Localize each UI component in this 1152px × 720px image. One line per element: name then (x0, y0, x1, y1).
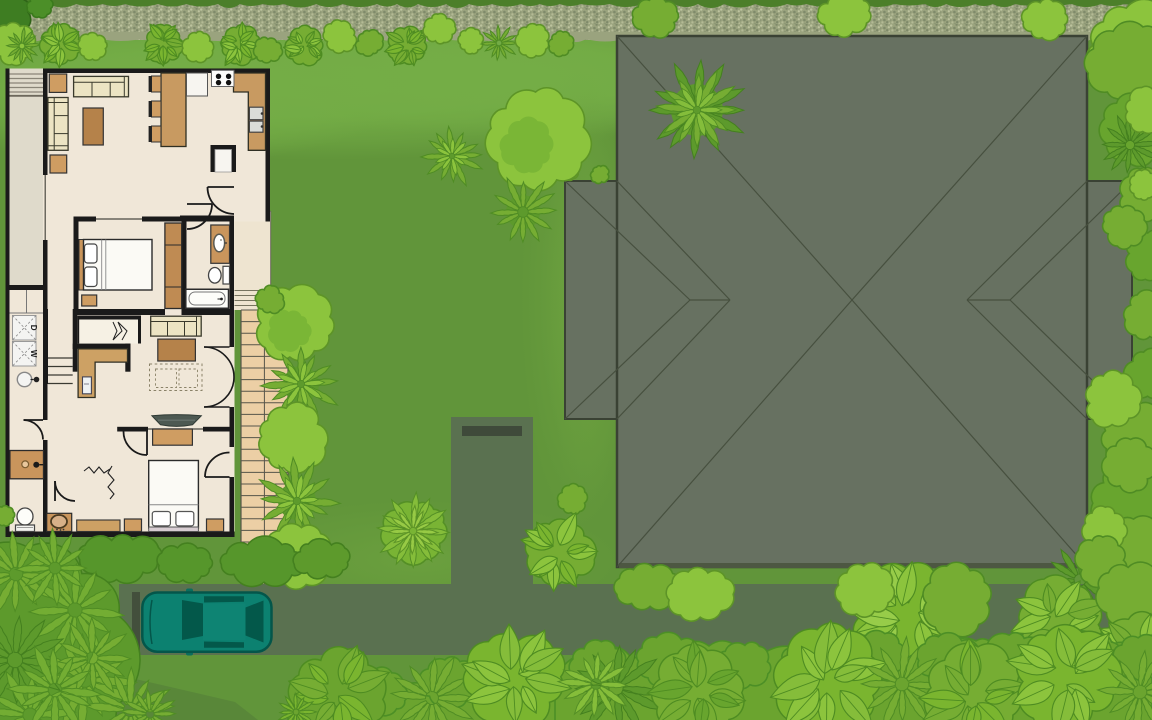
svg-text:D: D (29, 325, 38, 331)
svg-text:W: W (29, 350, 38, 358)
